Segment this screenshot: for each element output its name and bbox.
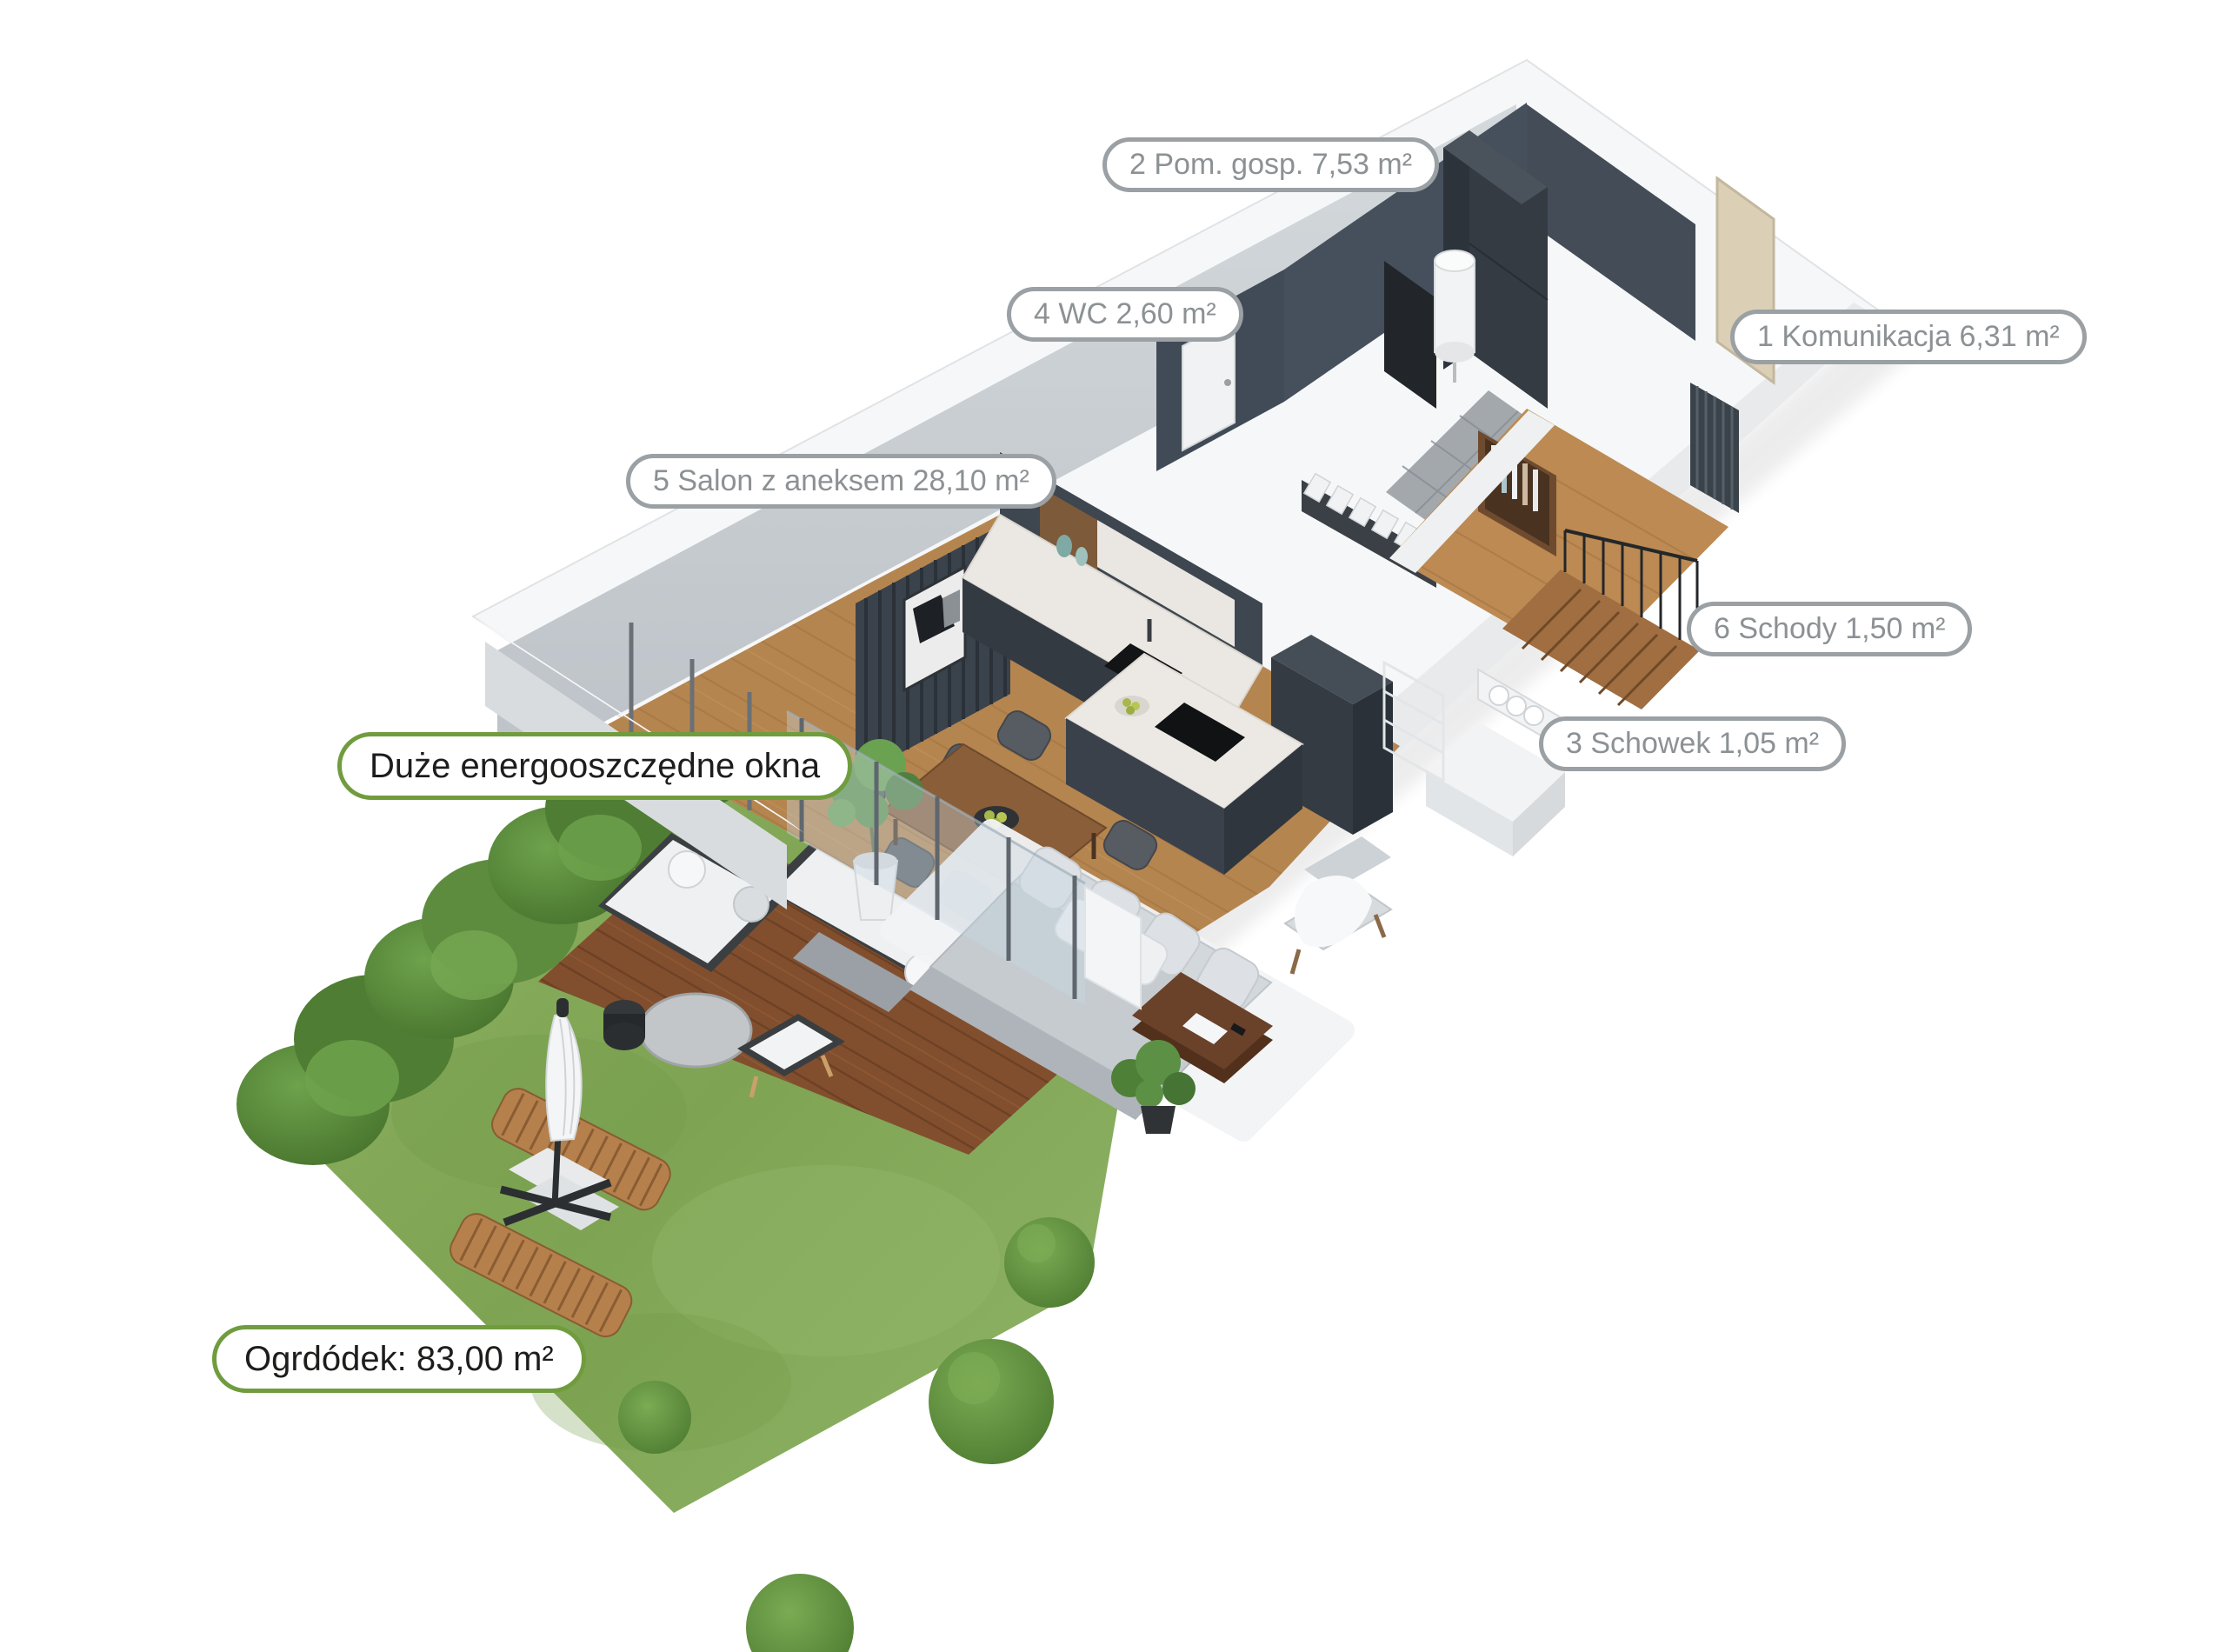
room-label-pom-gosp: 2 Pom. gosp. 7,53 m² — [1102, 137, 1439, 192]
room-label-komunikacja: 1 Komunikacja 6,31 m² — [1730, 310, 2087, 364]
feature-label-ogrodek: Ogrdódek: 83,00 m² — [212, 1325, 586, 1393]
floorplan-page: 2 Pom. gosp. 7,53 m² 4 WC 2,60 m² 1 Komu… — [0, 0, 2218, 1652]
room-label-schody: 6 Schody 1,50 m² — [1687, 602, 1972, 656]
room-label-wc: 4 WC 2,60 m² — [1007, 287, 1243, 342]
floorplan-render — [0, 0, 2218, 1652]
feature-label-okna: Duże energooszczędne okna — [337, 732, 852, 800]
room-label-salon: 5 Salon z aneksem 28,10 m² — [626, 454, 1056, 509]
room-label-schowek: 3 Schowek 1,05 m² — [1539, 716, 1846, 771]
